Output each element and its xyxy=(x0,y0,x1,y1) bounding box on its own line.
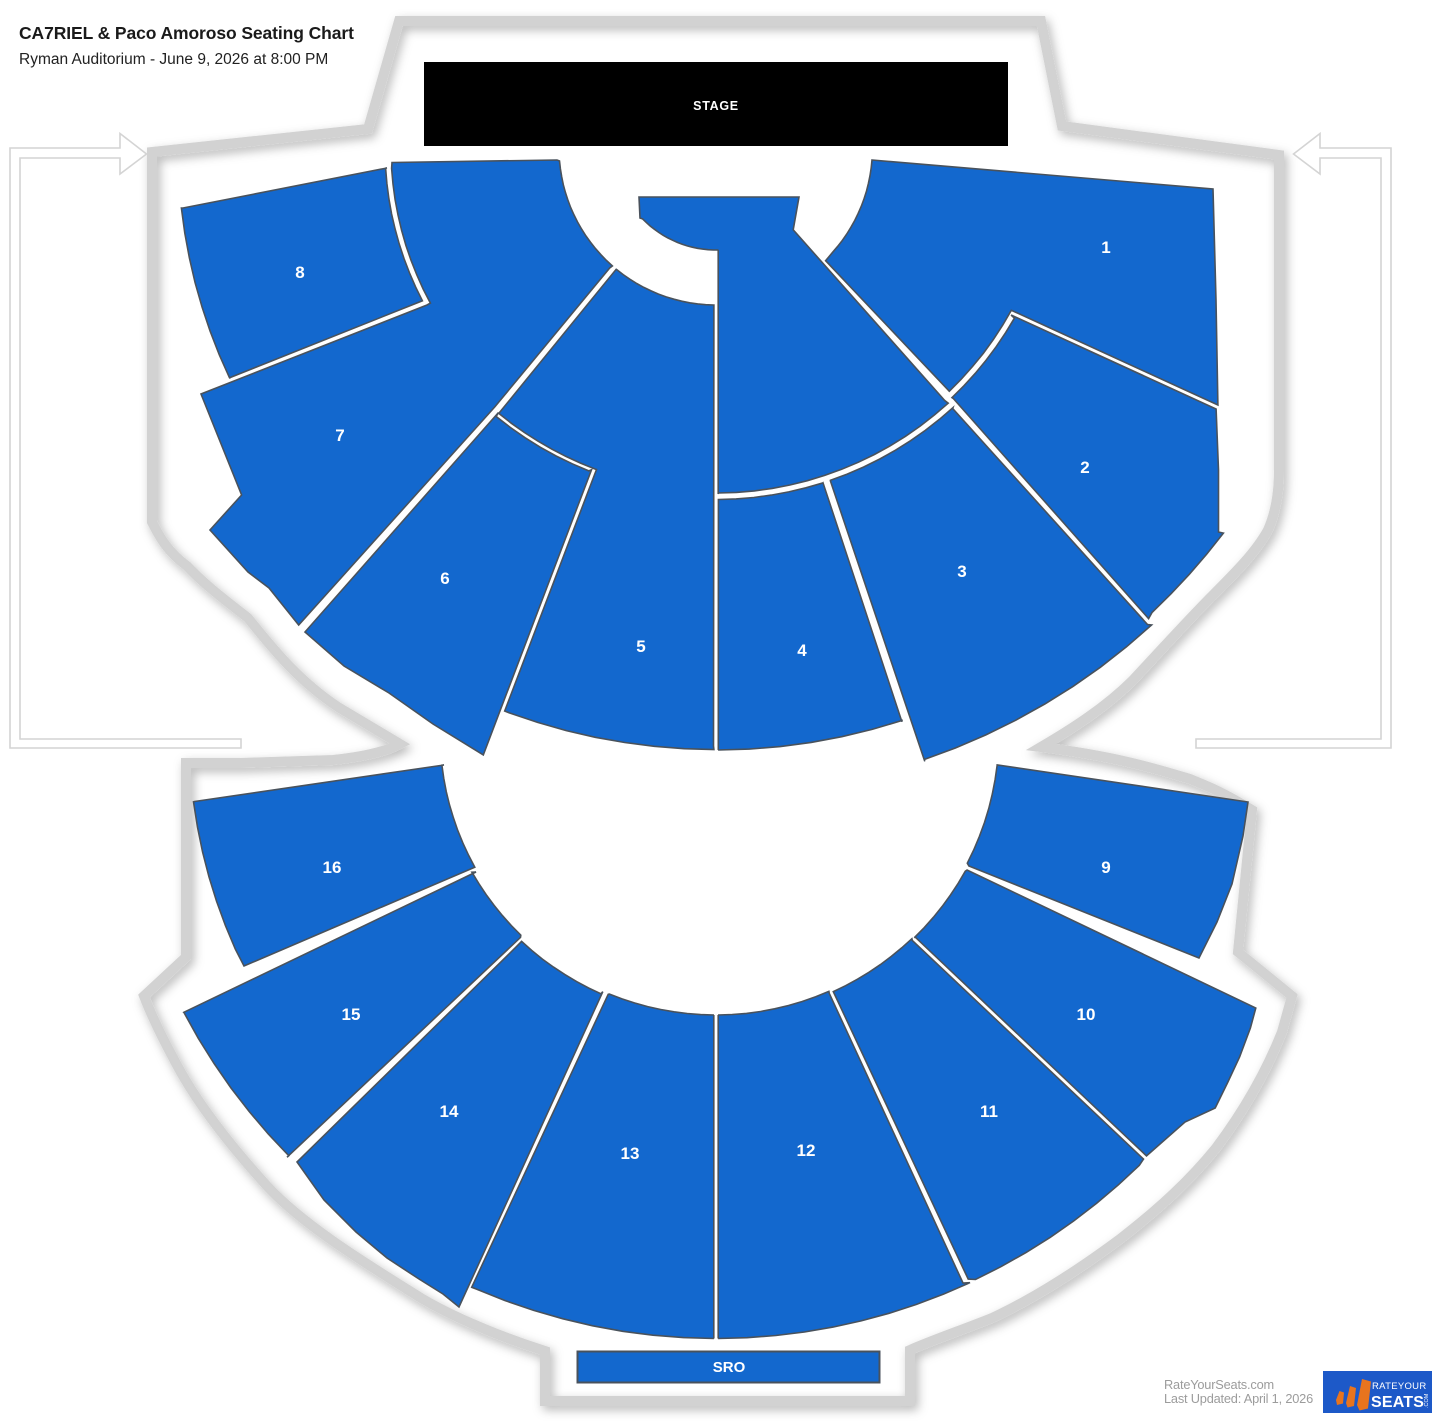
svg-text:8: 8 xyxy=(295,263,304,282)
svg-text:4: 4 xyxy=(797,641,807,660)
svg-text:6: 6 xyxy=(440,569,449,588)
svg-text:14: 14 xyxy=(440,1102,459,1121)
svg-text:11: 11 xyxy=(980,1102,998,1121)
svg-text:SEATS: SEATS xyxy=(1371,1394,1424,1411)
svg-text:9: 9 xyxy=(1101,858,1110,877)
svg-text:12: 12 xyxy=(797,1141,816,1160)
svg-text:2: 2 xyxy=(1080,458,1089,477)
svg-text:10: 10 xyxy=(1077,1005,1096,1024)
svg-text:.COM: .COM xyxy=(1424,1393,1430,1408)
svg-text:7: 7 xyxy=(335,426,344,445)
svg-text:SRO: SRO xyxy=(713,1359,746,1376)
svg-text:STAGE: STAGE xyxy=(693,99,739,113)
svg-text:1: 1 xyxy=(1101,238,1110,257)
svg-text:RATEYOUR: RATEYOUR xyxy=(1372,1381,1426,1392)
svg-text:16: 16 xyxy=(323,858,342,877)
svg-text:15: 15 xyxy=(342,1005,361,1024)
svg-text:13: 13 xyxy=(621,1144,640,1163)
svg-text:5: 5 xyxy=(636,637,645,656)
svg-text:3: 3 xyxy=(957,562,966,581)
